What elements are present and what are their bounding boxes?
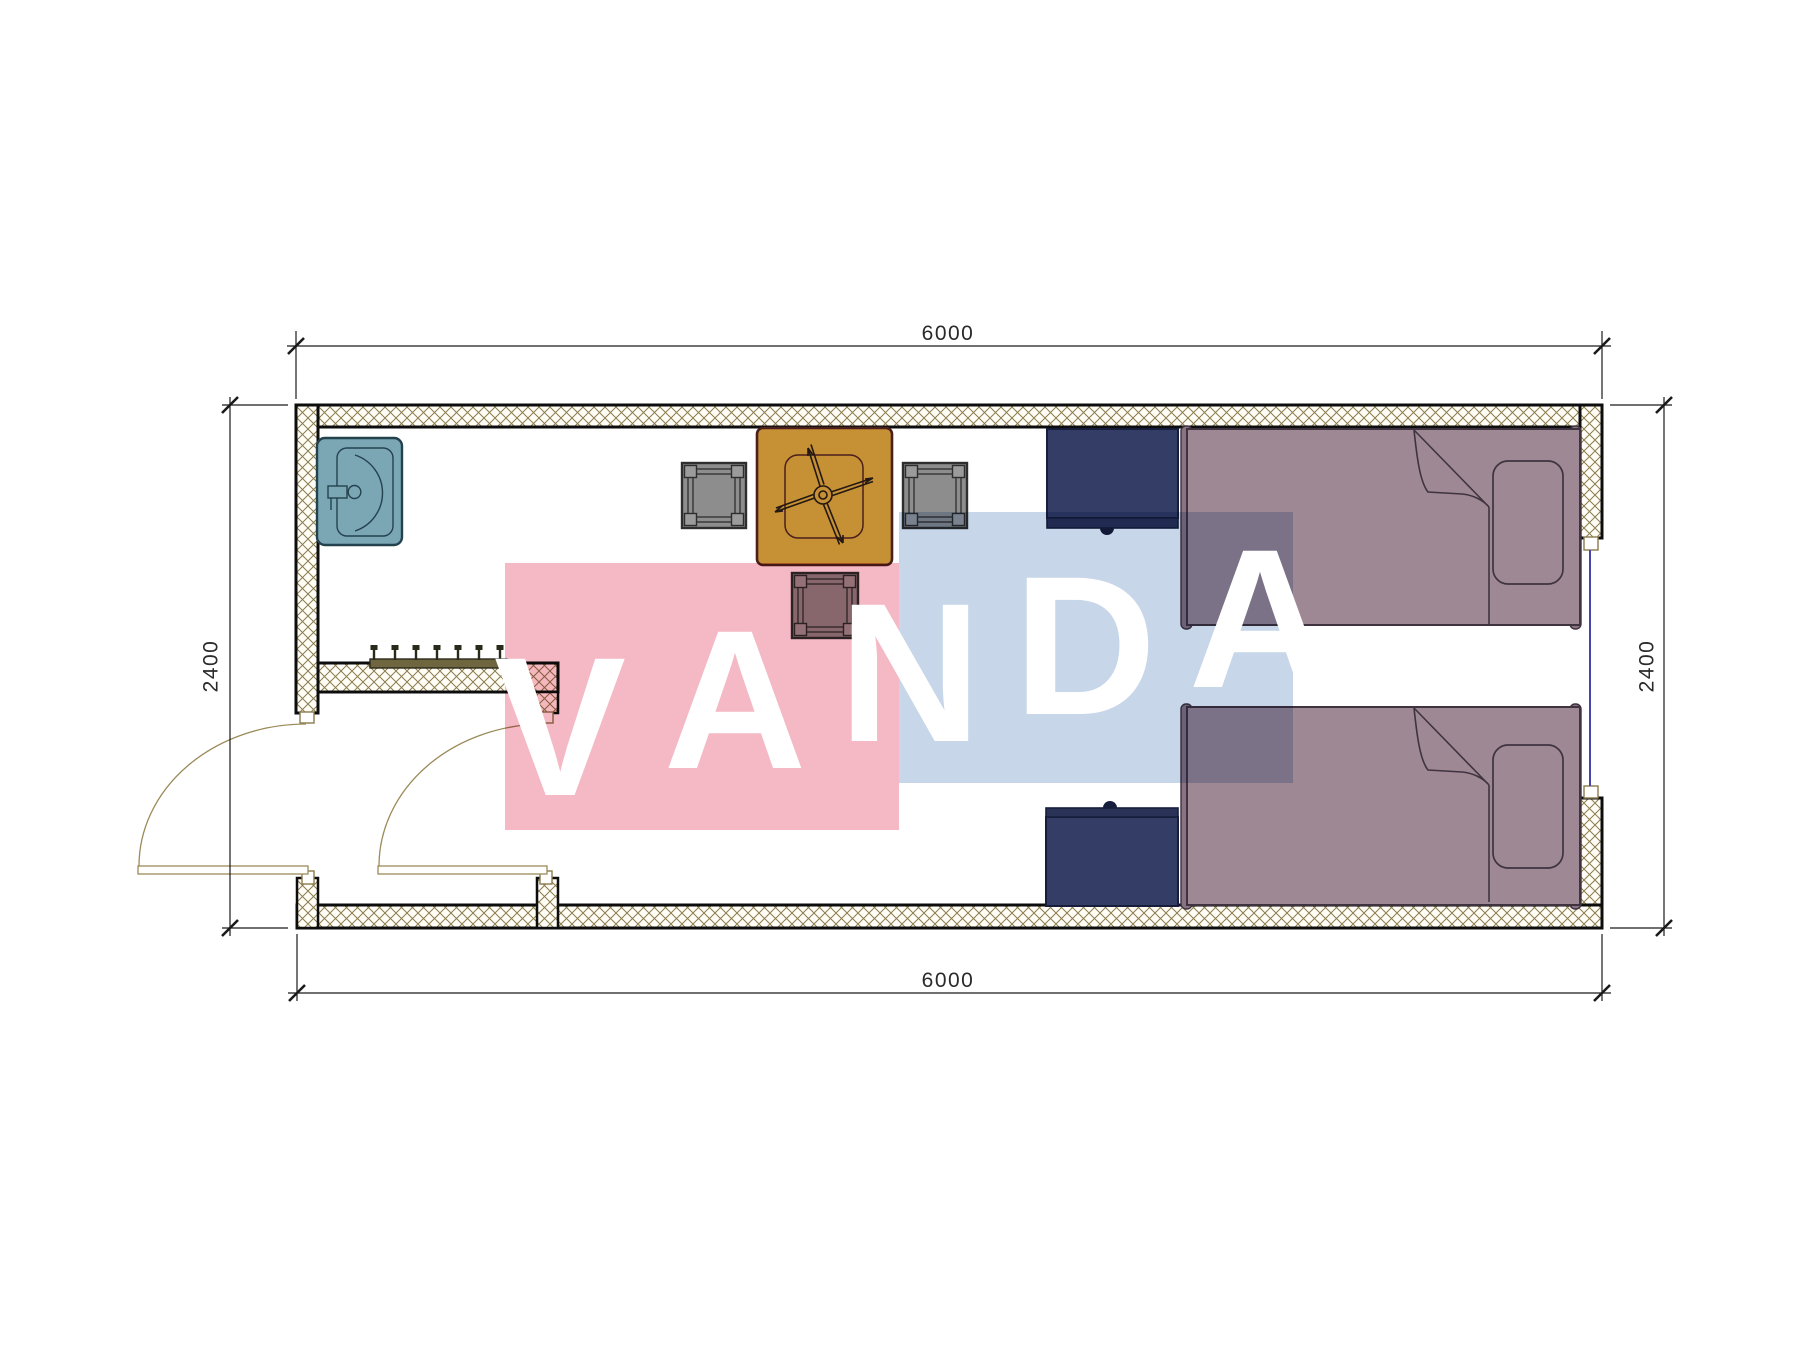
window-jamb-bottom xyxy=(1584,786,1598,798)
stool-left xyxy=(682,463,746,528)
dimension-label-left: 2400 xyxy=(200,640,223,693)
dimension-label-top: 6000 xyxy=(922,322,975,345)
coat-rack xyxy=(370,645,507,668)
door-leaf-left xyxy=(138,866,308,874)
sink-faucet xyxy=(328,486,347,498)
coat-rack-bar xyxy=(370,659,507,668)
floor-plan-drawing: 6000 6000 2400 2400 xyxy=(0,0,1800,1350)
nightstand-bottom xyxy=(1046,801,1178,906)
left-wall xyxy=(296,405,318,713)
coat-rack-hooks xyxy=(371,645,504,660)
coat-rack-hook xyxy=(371,645,378,660)
door-leaf-right xyxy=(378,866,547,874)
dining-table xyxy=(757,428,892,565)
nightstand-body xyxy=(1047,429,1178,518)
window-jamb-top xyxy=(1584,537,1598,550)
coat-rack-hook xyxy=(476,645,483,660)
sink xyxy=(317,438,402,545)
door-swing-arc-left xyxy=(139,724,306,866)
nightstand-body xyxy=(1046,817,1178,906)
floor-plan-canvas: 6000 6000 2400 2400 xyxy=(0,0,1800,1350)
watermark-letter: N xyxy=(839,562,982,783)
watermark-letter: D xyxy=(1014,535,1157,756)
nightstand-knob xyxy=(1103,801,1117,808)
coat-rack-hook xyxy=(413,645,420,660)
table-top xyxy=(757,428,892,565)
watermark-letter: A xyxy=(1189,508,1332,729)
coat-rack-hook xyxy=(434,645,441,660)
left-wall-jamb xyxy=(300,712,314,723)
coat-rack-hook xyxy=(455,645,462,660)
bottom-wall xyxy=(297,905,1602,928)
coat-rack-hook xyxy=(392,645,399,660)
dimension-label-bottom: 6000 xyxy=(922,969,975,992)
nightstand-lip xyxy=(1046,808,1178,817)
top-wall xyxy=(296,405,1602,427)
bottom-wall-stub-mid xyxy=(537,878,558,928)
watermark-letter: V xyxy=(494,616,626,837)
dimension-left xyxy=(222,397,288,936)
dimension-label-right: 2400 xyxy=(1636,640,1659,693)
bottom-wall-stub-left xyxy=(297,878,318,928)
right-wall-upper xyxy=(1580,405,1602,538)
watermark-letter: A xyxy=(664,589,807,810)
entry-doors xyxy=(138,724,547,874)
